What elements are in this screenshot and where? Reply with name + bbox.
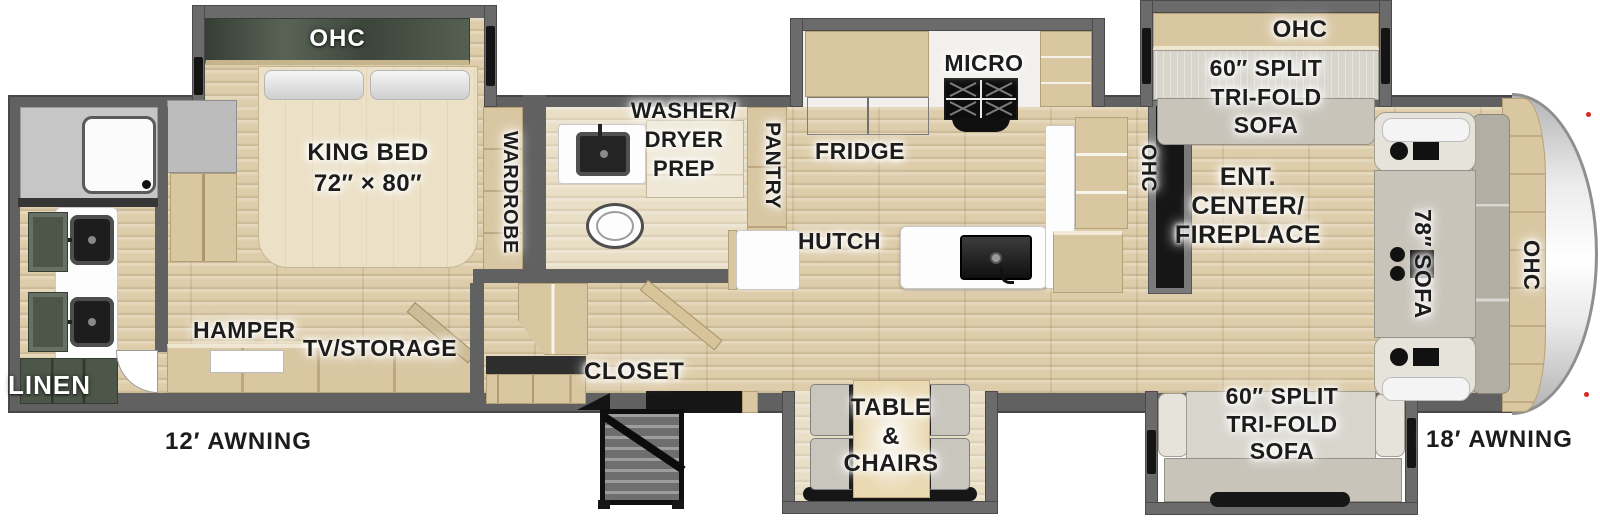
ent-center-label: ENT. — [1158, 163, 1338, 192]
awning-left-label: 12′ AWNING — [165, 428, 312, 456]
sofa-pillow — [1382, 377, 1470, 401]
cooktop-burners-icon — [946, 80, 1016, 118]
dinette-slideout-wall — [782, 391, 795, 514]
kitchen-slideout-wall — [790, 18, 803, 107]
cupholder — [1390, 348, 1408, 366]
front-cap-ohc-label: OHC — [1506, 224, 1544, 306]
sofa-top-label: 60″ SPLIT — [1166, 55, 1366, 81]
midbath-left-wall — [532, 95, 546, 283]
ent-center-label: FIREPLACE — [1158, 221, 1338, 250]
window — [1147, 430, 1156, 474]
kitchen-slideout-wall — [790, 18, 1105, 31]
bedroom-dresser-front — [170, 173, 237, 262]
bed-pillow — [370, 70, 470, 100]
bed-pillow — [264, 70, 364, 100]
cupholder — [1390, 142, 1408, 160]
closet-bedroom-wall — [470, 283, 484, 393]
marker-light — [1584, 392, 1589, 397]
dinette-slideout-wall — [782, 501, 998, 514]
pantry-label: PANTRY — [750, 110, 784, 220]
toilet-bowl — [596, 211, 634, 241]
rv-floorplan: OHC KING BED 72″ × 80″ WARDROBE LINEN HA… — [0, 0, 1600, 528]
sofa-top-label: SOFA — [1166, 112, 1366, 138]
console-tray — [1413, 142, 1439, 160]
sofa-top-label: TRI-FOLD — [1166, 84, 1366, 110]
king-bed-label: KING BED — [258, 139, 478, 167]
hamper-label: HAMPER — [193, 317, 296, 343]
tv-storage-label: TV/STORAGE — [303, 335, 457, 361]
wall-end-cap — [742, 391, 758, 413]
window — [1381, 28, 1390, 84]
window — [1407, 418, 1416, 468]
king-bed-size-label: 72″ × 80″ — [258, 170, 478, 198]
window — [1142, 28, 1151, 84]
sink-drain — [88, 236, 96, 244]
wardrobe-label: WARDROBE — [487, 112, 521, 272]
sink-drain — [88, 318, 96, 326]
front-sofa-backrest — [1472, 114, 1510, 394]
closet-bench-top — [486, 356, 586, 376]
medicine-cabinet — [28, 212, 68, 272]
sink-drain — [990, 252, 1002, 264]
kitchen-overhead-cabinets — [1075, 117, 1128, 229]
bedroom-ohc-label: OHC — [205, 25, 470, 53]
cupholder-console — [1390, 346, 1442, 368]
storage-hatch — [1210, 492, 1350, 507]
range-hood — [952, 118, 1010, 132]
table-chairs-label: & — [818, 423, 964, 451]
bedroom-dresser-top — [167, 100, 237, 173]
micro-label: MICRO — [928, 50, 1040, 76]
fridge-cabinet — [805, 31, 929, 97]
hutch-counter — [736, 230, 800, 290]
table-chairs-label: CHAIRS — [818, 450, 964, 478]
marker-light — [1586, 112, 1591, 117]
step-foot — [598, 500, 610, 509]
closet-label: CLOSET — [584, 358, 684, 386]
washer-dryer-label: WASHER/ — [609, 98, 759, 123]
hutch-label: HUTCH — [798, 228, 881, 254]
table-chairs-label: TABLE — [818, 394, 964, 422]
kitchen-upper-cabinet — [1040, 31, 1092, 107]
window — [486, 26, 495, 86]
sofa-bottom-label: SOFA — [1182, 438, 1382, 464]
fridge-doors — [807, 97, 929, 135]
faucet — [598, 124, 602, 136]
living-top-slideout-wall — [1140, 0, 1392, 13]
cupholder-console — [1390, 140, 1442, 162]
ent-center-label: CENTER/ — [1158, 192, 1338, 221]
shower-drain — [142, 180, 151, 189]
medicine-cabinet — [28, 292, 68, 352]
living-ohc-label: OHC — [1240, 16, 1360, 44]
door-swing-triangle — [577, 393, 610, 410]
sink-drain — [600, 150, 608, 158]
awning-right-label: 18′ AWNING — [1426, 426, 1573, 454]
step-foot — [672, 500, 684, 509]
bedroom-slideout-wall — [192, 5, 497, 19]
kitchen-corner-cabinet — [1053, 231, 1123, 293]
washer-dryer-label: PREP — [609, 156, 759, 181]
kitchen-slideout-wall — [1092, 18, 1105, 107]
sofa-bottom-label: TRI-FOLD — [1182, 411, 1382, 437]
front-sofa-label: 78″ SOFA — [1400, 186, 1436, 341]
dinette-slideout-wall — [985, 391, 998, 514]
console-tray — [1413, 348, 1439, 366]
closet-bench — [486, 374, 586, 404]
fridge-label: FRIDGE — [800, 138, 920, 164]
linen-label: LINEN — [8, 370, 91, 401]
washer-dryer-label: DRYER — [609, 127, 759, 152]
sofa-bottom-label: 60″ SPLIT — [1182, 383, 1382, 409]
sofa-pillow — [1382, 118, 1470, 142]
tv-inset — [210, 350, 284, 373]
window — [194, 57, 203, 95]
kitchen-ohc-label: OHC — [1128, 136, 1160, 200]
shower-ledge — [18, 198, 158, 207]
